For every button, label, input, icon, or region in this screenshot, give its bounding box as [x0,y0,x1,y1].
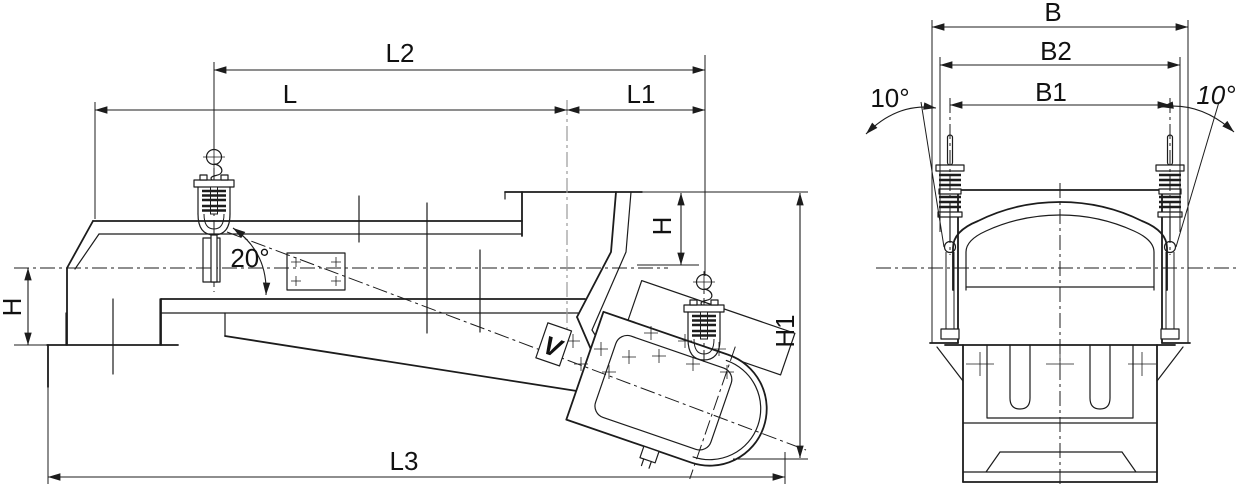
hanger-hook-icon [211,164,222,180]
main-elevation-view: V [0,38,808,487]
dim-label-L3: L3 [390,446,419,476]
dim-label-L: L [283,79,297,109]
spring-hanger-left [194,146,234,282]
end-view: B B2 B1 10° 10° [866,0,1236,486]
dim-label-H-left: H [0,298,27,317]
dim-label-B2: B2 [1040,36,1072,66]
dim-label-B: B [1044,0,1061,27]
nameplate [287,253,345,290]
feeder-body-outline [47,192,642,403]
angle-label-10deg-right: 10° [1196,80,1235,110]
dim-label-L1: L1 [627,79,656,109]
dim-label-H1: H1 [770,314,800,347]
angle-label-10deg-left: 10° [870,83,909,113]
dim-label-B1: B1 [1035,77,1067,107]
drawing-page: V [0,0,1239,487]
angle-label-20deg: 20° [230,243,269,273]
technical-drawing-canvas: V [0,0,1239,487]
vibration-direction-marker: V [536,323,572,366]
dim-label-H-right: H [647,217,677,236]
hanger-rod [211,235,217,282]
vibrator-motor [560,272,796,487]
dim-label-L2: L2 [386,38,415,68]
